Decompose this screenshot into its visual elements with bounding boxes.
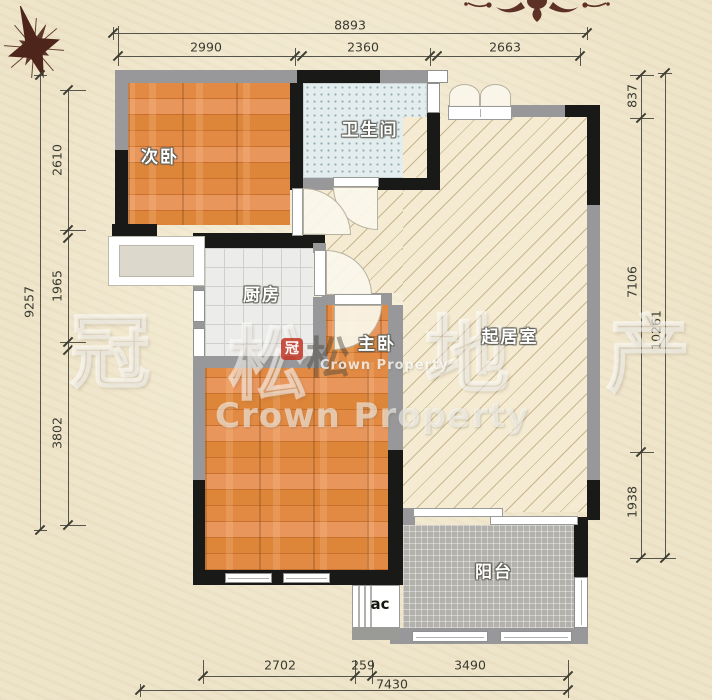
dim-right-seg3: 1938	[625, 486, 640, 518]
watermark-brand-large: Crown Property	[215, 396, 529, 436]
window	[500, 631, 572, 642]
watermark-logo-char: 松	[306, 322, 350, 386]
dim-top-seg3: 2663	[489, 40, 521, 55]
wall	[115, 70, 297, 83]
entry-door-sill	[448, 106, 512, 120]
window	[427, 70, 448, 83]
dim-bottom-total: 7430	[376, 677, 408, 692]
room-label-bathroom: 卫生间	[342, 116, 399, 141]
wall	[388, 450, 403, 585]
bedroom2-door-leaf	[292, 188, 303, 236]
dim-line	[140, 690, 568, 691]
dim-top-seg2: 2360	[347, 40, 379, 55]
dim-top-total: 8893	[334, 18, 366, 33]
wall	[574, 517, 588, 577]
room-label-living: 起居室	[482, 323, 539, 348]
dim-left-seg2: 1965	[50, 270, 65, 302]
dim-ext	[568, 660, 569, 698]
window	[574, 577, 588, 628]
window	[193, 328, 205, 358]
bathroom-door-leaf	[333, 177, 379, 187]
dim-left-seg1: 2610	[50, 144, 65, 176]
wall	[290, 83, 303, 178]
room-label-bedroom2: 次卧	[141, 143, 179, 168]
entry-door-left-swing	[449, 84, 480, 108]
entry-door-right-swing	[480, 84, 511, 108]
dim-line	[113, 33, 587, 34]
wall	[297, 70, 380, 83]
ornament-icon	[452, 0, 622, 22]
room-label-ac: ac	[370, 595, 389, 613]
wall	[380, 70, 427, 83]
wall	[427, 113, 440, 190]
window	[193, 290, 205, 322]
dim-line	[118, 56, 580, 57]
window	[225, 573, 272, 583]
watermark-char-4: 产	[606, 288, 690, 409]
dim-left-total: 9257	[22, 286, 37, 318]
bay-window	[108, 236, 205, 286]
dim-right-seg1: 837	[625, 84, 640, 108]
room-label-balcony: 阳台	[475, 558, 513, 583]
kitchen-door-leaf	[314, 250, 326, 296]
dim-left-seg3: 3802	[50, 417, 65, 449]
watermark-char-3: 地	[425, 288, 509, 409]
dim-line	[68, 90, 69, 525]
floorplan-canvas: 冠 松 地 产 Crown Property 冠 松 Crown Propert…	[0, 0, 712, 700]
room-label-master: 主卧	[358, 330, 396, 355]
room-label-kitchen: 厨房	[243, 281, 281, 306]
watermark-logo: 冠	[281, 338, 303, 360]
dim-top-seg1: 2990	[190, 40, 222, 55]
wall	[193, 368, 205, 480]
watermark-char-1: 冠	[70, 288, 150, 404]
dim-bottom-seg2: 259	[351, 658, 375, 673]
wall	[587, 205, 600, 480]
balcony-sliding-door-panel2	[490, 516, 578, 525]
window	[412, 631, 488, 642]
wall	[587, 105, 600, 205]
wall	[115, 70, 128, 150]
window	[283, 573, 330, 583]
wall	[587, 480, 600, 520]
window	[427, 83, 440, 113]
dim-bottom-seg3: 3490	[454, 658, 486, 673]
dim-ext	[118, 26, 119, 66]
dim-line	[40, 75, 41, 530]
watermark-brand-small: Crown Property	[320, 358, 449, 373]
master-door-leaf	[334, 294, 382, 305]
dim-bottom-seg1: 2702	[264, 658, 296, 673]
wall	[193, 233, 325, 248]
